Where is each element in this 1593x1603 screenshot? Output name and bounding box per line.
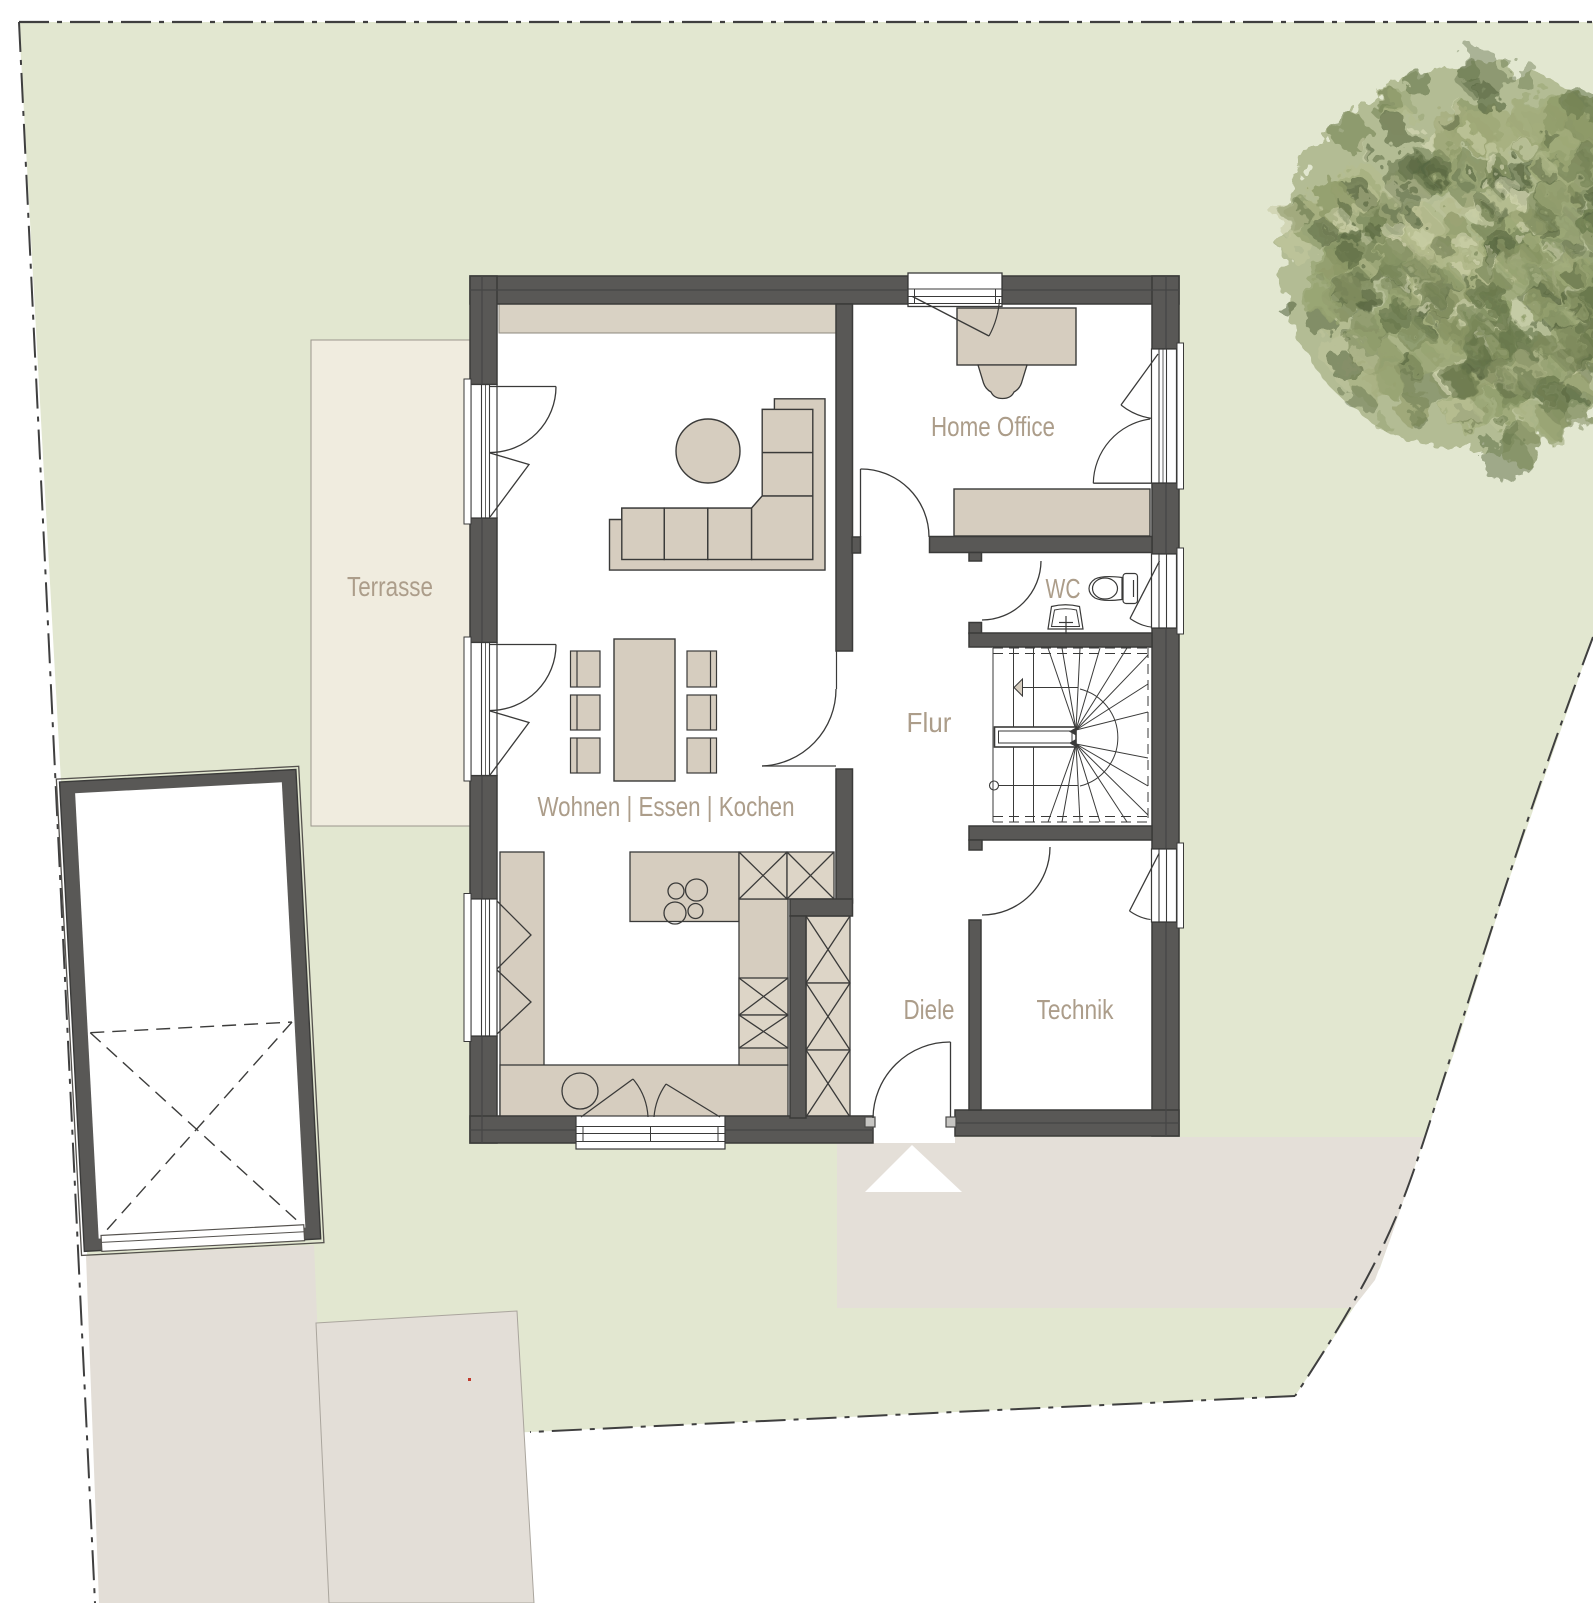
- svg-text:Flur: Flur: [907, 707, 952, 738]
- svg-text:Wohnen | Essen | Kochen: Wohnen | Essen | Kochen: [538, 791, 795, 822]
- svg-text:WC: WC: [1046, 573, 1081, 604]
- svg-text:Diele: Diele: [904, 994, 955, 1025]
- svg-text:Terrasse: Terrasse: [347, 571, 433, 602]
- svg-text:Home Office: Home Office: [931, 411, 1055, 442]
- svg-text:Technik: Technik: [1037, 994, 1115, 1025]
